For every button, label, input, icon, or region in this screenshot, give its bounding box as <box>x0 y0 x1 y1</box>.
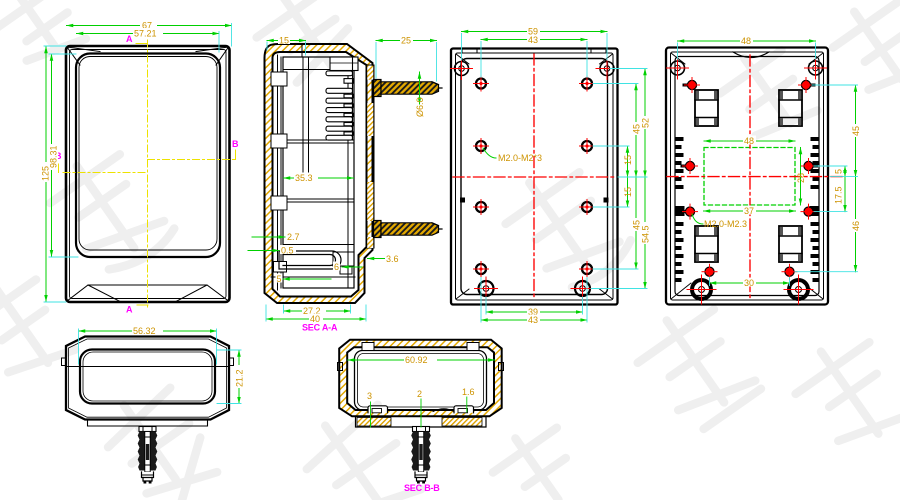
svg-text:A: A <box>126 305 133 315</box>
svg-text:43: 43 <box>528 35 538 45</box>
svg-text:1.6: 1.6 <box>462 387 475 397</box>
svg-text:SEC A-A: SEC A-A <box>302 323 338 333</box>
svg-text:0.5: 0.5 <box>281 246 294 256</box>
svg-text:28: 28 <box>796 173 806 183</box>
svg-text:15: 15 <box>279 36 289 46</box>
svg-text:48: 48 <box>744 136 754 146</box>
svg-text:21.2: 21.2 <box>235 369 245 387</box>
svg-text:15: 15 <box>623 187 633 197</box>
svg-text:48: 48 <box>741 36 751 46</box>
svg-text:2.7: 2.7 <box>287 232 300 242</box>
svg-text:SEC B-B: SEC B-B <box>404 483 440 493</box>
svg-text:43: 43 <box>528 315 538 325</box>
svg-text:54.5: 54.5 <box>641 225 651 243</box>
svg-text:57.21: 57.21 <box>134 29 157 39</box>
svg-text:60.92: 60.92 <box>405 355 428 365</box>
svg-text:5: 5 <box>277 274 282 284</box>
svg-text:3: 3 <box>367 391 372 401</box>
svg-text:17.5: 17.5 <box>834 186 844 204</box>
svg-text:Ø6.0: Ø6.0 <box>415 97 425 117</box>
svg-text:25: 25 <box>401 36 411 46</box>
svg-text:M2.0-M2.3: M2.0-M2.3 <box>704 219 747 229</box>
svg-text:30: 30 <box>744 278 754 288</box>
svg-text:56.32: 56.32 <box>133 326 156 336</box>
svg-text:2: 2 <box>417 389 422 399</box>
svg-text:15: 15 <box>623 155 633 165</box>
svg-text:45: 45 <box>851 126 861 136</box>
svg-text:35.3: 35.3 <box>295 173 313 183</box>
svg-text:M2.0-M2*3: M2.0-M2*3 <box>498 153 542 163</box>
svg-text:A: A <box>126 34 133 44</box>
svg-text:37: 37 <box>744 206 754 216</box>
svg-text:98.31: 98.31 <box>49 145 59 168</box>
svg-text:52: 52 <box>641 118 651 128</box>
svg-text:46: 46 <box>851 221 861 231</box>
svg-text:5: 5 <box>834 169 844 174</box>
svg-text:6: 6 <box>334 262 339 272</box>
svg-text:3.6: 3.6 <box>386 254 399 264</box>
svg-text:B: B <box>232 139 239 149</box>
